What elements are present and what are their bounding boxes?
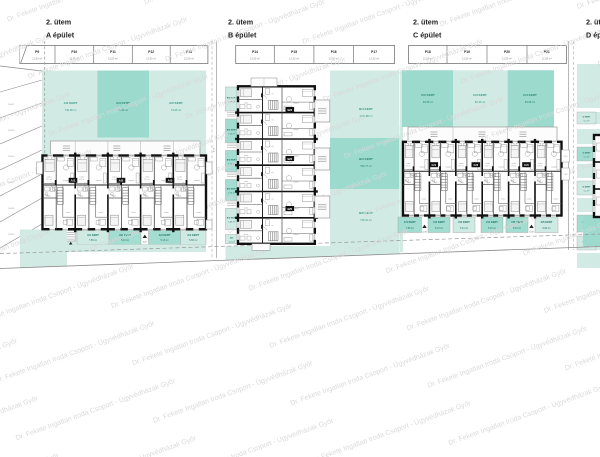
svg-text:szoba: szoba <box>244 102 249 104</box>
svg-text:A/3 KERT: A/3 KERT <box>159 233 171 237</box>
svg-text:elő: elő <box>84 183 86 185</box>
svg-text:P18: P18 <box>425 50 431 54</box>
svg-text:P12: P12 <box>148 50 154 54</box>
svg-text:726.61 m²: 726.61 m² <box>360 218 372 222</box>
svg-text:nappali: nappali <box>293 234 299 236</box>
svg-text:C/6 KERT: C/6 KERT <box>541 220 553 224</box>
svg-text:D KERT: D KERT <box>583 117 591 119</box>
svg-text:nappali: nappali <box>293 182 299 184</box>
svg-text:B/5 KERT: B/5 KERT <box>227 129 238 131</box>
svg-text:C/2 KERT: C/2 KERT <box>421 93 435 97</box>
svg-text:12,5 m²: 12,5 m² <box>177 178 183 181</box>
svg-text:12,5 m²: 12,5 m² <box>458 164 464 167</box>
svg-text:5.13 m²: 5.13 m² <box>460 227 468 230</box>
svg-text:P14: P14 <box>252 50 258 54</box>
svg-text:nappali: nappali <box>129 180 135 182</box>
svg-text:elő: elő <box>410 169 412 171</box>
svg-text:szoba: szoba <box>66 212 71 214</box>
svg-text:elő: elő <box>436 169 438 171</box>
svg-text:2. ütem: 2. ütem <box>228 18 253 27</box>
svg-text:szoba: szoba <box>448 199 453 201</box>
svg-text:P10: P10 <box>71 50 77 54</box>
svg-text:5,1 m²: 5,1 m² <box>584 190 590 193</box>
svg-text:nappali: nappali <box>96 180 102 182</box>
svg-text:A/1: A/1 <box>71 179 76 183</box>
svg-text:12,5 m²: 12,5 m² <box>537 164 543 167</box>
svg-text:5.66 m²: 5.66 m² <box>542 227 550 230</box>
svg-text:D KERT: D KERT <box>583 187 591 189</box>
svg-text:12,50 m²: 12,50 m² <box>462 58 472 61</box>
svg-text:73.05 m²: 73.05 m² <box>171 108 181 112</box>
svg-text:szoba: szoba <box>244 208 249 210</box>
svg-text:2. ütem: 2. ütem <box>46 18 71 27</box>
svg-text:A/3: A/3 <box>168 179 173 183</box>
svg-text:752.77 m²: 752.77 m² <box>360 164 372 168</box>
svg-text:elő: elő <box>489 169 491 171</box>
svg-text:5.13 m²: 5.13 m² <box>435 227 443 230</box>
svg-text:12,50 m²: 12,50 m² <box>184 58 194 61</box>
svg-text:elő: elő <box>271 225 273 227</box>
svg-text:12,5 m²: 12,5 m² <box>144 178 150 181</box>
svg-text:1042/6: 1042/6 <box>8 208 15 210</box>
svg-text:C/2 KERT: C/2 KERT <box>433 220 445 224</box>
svg-text:B épület: B épület <box>228 31 257 40</box>
svg-text:szoba: szoba <box>527 199 532 201</box>
svg-text:P15: P15 <box>291 50 297 54</box>
svg-text:szoba: szoba <box>98 212 103 214</box>
svg-text:elő: elő <box>51 183 53 185</box>
svg-text:C/4 KERT: C/4 KERT <box>523 93 537 97</box>
svg-text:elő: elő <box>182 183 184 185</box>
svg-text:szoba: szoba <box>553 199 558 201</box>
svg-text:elő: elő <box>271 199 273 201</box>
svg-text:2. ütem: 2. ütem <box>413 18 438 27</box>
svg-text:elő: elő <box>271 146 273 148</box>
svg-text:C/3 KERT: C/3 KERT <box>473 93 487 97</box>
svg-text:elő: elő <box>271 172 273 174</box>
svg-text:12,5 m²: 12,5 m² <box>511 164 517 167</box>
svg-text:5,1 m²: 5,1 m² <box>584 156 590 159</box>
svg-text:12,5 m²: 12,5 m² <box>46 178 52 181</box>
svg-text:12,50 m²: 12,50 m² <box>542 58 552 61</box>
svg-text:83.08 m²: 83.08 m² <box>423 100 433 104</box>
svg-text:elő: elő <box>542 169 544 171</box>
svg-text:12,50 m²: 12,50 m² <box>108 58 118 61</box>
svg-text:D épület: D épület <box>586 31 600 40</box>
svg-text:B/2: B/2 <box>287 108 292 112</box>
svg-text:P16: P16 <box>331 50 337 54</box>
svg-text:2. ütem: 2. ütem <box>586 18 600 27</box>
svg-text:A/4 KERT: A/4 KERT <box>64 101 78 105</box>
svg-text:nappali: nappali <box>446 166 452 168</box>
svg-text:B/3: B/3 <box>287 157 292 161</box>
svg-text:C/1: C/1 <box>431 163 436 167</box>
svg-text:749.38 m²: 749.38 m² <box>65 108 77 112</box>
svg-text:nappali: nappali <box>194 180 200 182</box>
svg-text:C/1 KERT: C/1 KERT <box>404 220 416 224</box>
svg-text:szoba: szoba <box>131 212 136 214</box>
svg-text:12,50 m²: 12,50 m² <box>32 58 42 61</box>
svg-text:nappali: nappali <box>293 103 299 105</box>
svg-text:elő: elő <box>515 169 517 171</box>
svg-text:P17: P17 <box>371 50 377 54</box>
svg-text:5.13 m²: 5.13 m² <box>228 132 235 135</box>
svg-text:A/2: A/2 <box>119 179 124 183</box>
svg-text:nappali: nappali <box>419 166 425 168</box>
svg-text:szoba: szoba <box>164 212 169 214</box>
svg-text:szoba: szoba <box>244 181 249 183</box>
svg-text:83.08 m²: 83.08 m² <box>525 100 535 104</box>
svg-text:B/4 KERT: B/4 KERT <box>359 107 373 111</box>
svg-text:elő: elő <box>463 169 465 171</box>
svg-text:4.5 m²: 4.5 m² <box>229 241 235 244</box>
svg-text:szoba: szoba <box>421 199 426 201</box>
svg-text:1042/4: 1042/4 <box>8 156 15 158</box>
svg-text:B/3 KERT: B/3 KERT <box>227 189 238 191</box>
svg-text:A/1 KERT: A/1 KERT <box>87 233 99 237</box>
svg-text:szoba: szoba <box>244 155 249 157</box>
svg-text:P9: P9 <box>35 50 39 54</box>
svg-text:C/5: C/5 <box>524 163 529 167</box>
svg-text:5,13: 5,13 <box>564 174 568 176</box>
svg-text:5,1 m²: 5,1 m² <box>584 120 590 123</box>
svg-text:12,50 m²: 12,50 m² <box>289 58 299 61</box>
svg-text:elő: elő <box>271 120 273 122</box>
svg-text:1042/7: 1042/7 <box>8 234 15 236</box>
svg-text:1042/2: 1042/2 <box>8 104 15 106</box>
svg-text:12,50 m²: 12,50 m² <box>250 58 260 61</box>
svg-text:nappali: nappali <box>551 166 557 168</box>
svg-text:12,5 m²: 12,5 m² <box>405 164 411 167</box>
svg-text:5.66 m²: 5.66 m² <box>189 239 197 242</box>
svg-text:nappali: nappali <box>63 180 69 182</box>
svg-text:C épület: C épület <box>413 31 442 40</box>
svg-text:12,50 m²: 12,50 m² <box>146 58 156 61</box>
svg-text:B/3 KERT: B/3 KERT <box>359 157 373 161</box>
svg-text:A/4 KERT: A/4 KERT <box>187 233 199 237</box>
svg-text:P20: P20 <box>504 50 510 54</box>
svg-text:7.58 m²: 7.58 m² <box>89 239 97 242</box>
svg-text:B/5: B/5 <box>287 207 292 211</box>
svg-text:nappali: nappali <box>293 129 299 131</box>
svg-text:12,5 m²: 12,5 m² <box>485 164 491 167</box>
svg-text:szoba: szoba <box>244 129 249 131</box>
svg-text:5,13: 5,13 <box>564 156 568 158</box>
svg-text:12,50 m²: 12,50 m² <box>369 58 379 61</box>
svg-text:D KERT: D KERT <box>583 153 591 155</box>
svg-text:nappali: nappali <box>498 166 504 168</box>
svg-text:A/5 KERT: A/5 KERT <box>169 101 183 105</box>
svg-text:C/3: C/3 <box>473 163 478 167</box>
svg-text:A épület: A épület <box>46 31 75 40</box>
svg-text:szoba: szoba <box>474 199 479 201</box>
svg-text:szoba: szoba <box>244 234 249 236</box>
svg-text:szoba: szoba <box>501 199 506 201</box>
svg-text:elő: elő <box>271 93 273 95</box>
svg-text:5.13 m²: 5.13 m² <box>160 239 168 242</box>
svg-text:C/3 KERT: C/3 KERT <box>458 220 470 224</box>
svg-text:szoba: szoba <box>197 212 202 214</box>
svg-text:1042/3: 1042/3 <box>8 130 15 132</box>
svg-text:12,5 m²: 12,5 m² <box>79 178 85 181</box>
svg-text:5.66 m²: 5.66 m² <box>228 220 235 223</box>
svg-text:elő: elő <box>149 183 151 185</box>
svg-text:C/4 KERT: C/4 KERT <box>486 220 498 224</box>
svg-text:nappali: nappali <box>293 208 299 210</box>
svg-text:nappali: nappali <box>293 155 299 157</box>
